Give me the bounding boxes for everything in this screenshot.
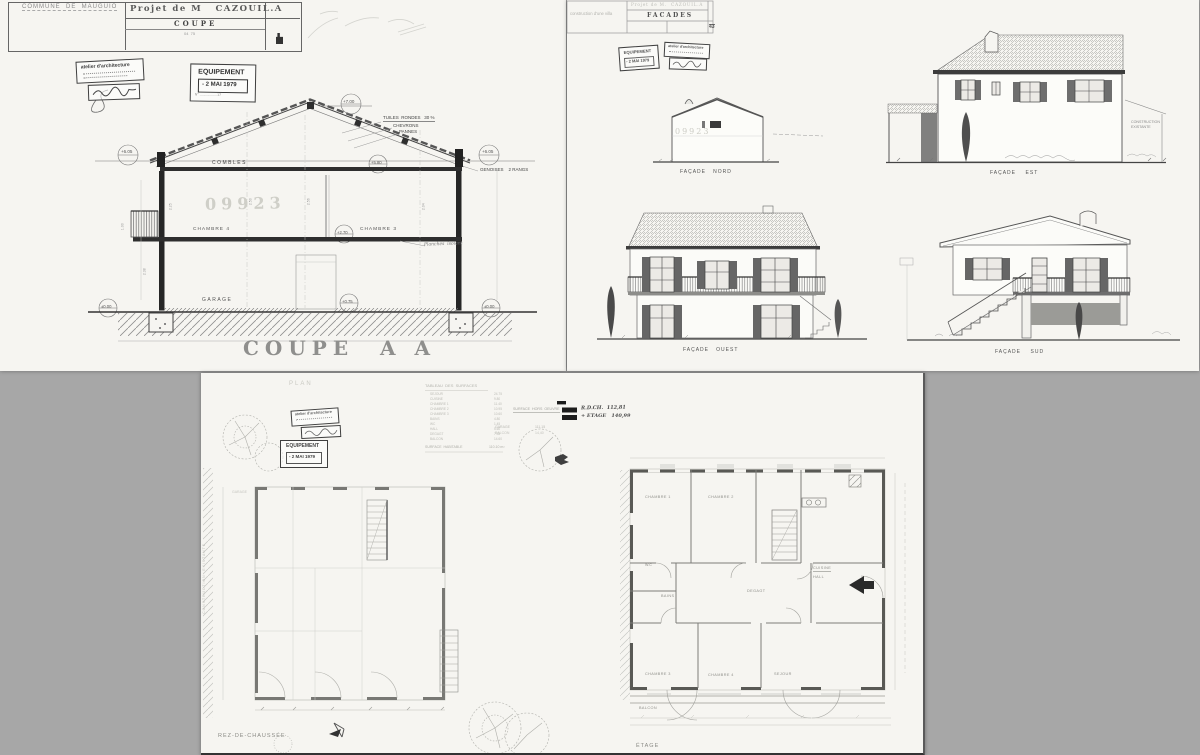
room-chambre-right: CHAMBRE 3 [360,228,397,233]
level-ground-right: ±0.00 [484,305,494,309]
drawing-title: COUPE [174,20,217,27]
equipement-stamp: EQUIPEMENT - 2 MAI 1979 N° .............… [190,63,257,102]
stamp-address-line [83,71,135,75]
surface-note-balcon: BALCON [495,432,509,436]
table-total-label: SURFACE HABITABLE [425,446,462,450]
etage-walls [630,470,885,690]
table-row-value: 14.60 [494,438,502,441]
dim-value: 1.00 [122,223,126,230]
table-total-value: 110.10 m² [489,446,505,450]
table-row-label: CUISINE [430,398,443,401]
atelier-stamp-text: atelier d'architecture [668,45,703,50]
sheet-plan: PLAN atelier d'architecture EQUIPEMENT -… [201,373,925,755]
room-degagt: DEGAGT [747,590,765,594]
facades-signature-stamp [669,57,707,70]
table-row-label: CHAMBRE 3 [430,413,449,416]
room-chambre-left: CHAMBRE 4 [193,228,230,233]
rdc-walls [255,487,445,700]
equipement-date: - 2 MAI 1979 [289,455,315,460]
surface-table-title: TABLEAU DES SURFACES [425,384,477,388]
plan-atelier-stamp: atelier d'architecture [291,407,340,426]
room-cuisine: CUISINE [813,567,831,572]
table-row-label: CHAMBRE 2 [430,408,449,411]
level-combles: +5.80 [371,161,382,165]
note-pannes: PANNES [399,130,417,135]
room-hall: HALL [813,576,824,580]
dim-value: 2.38 [144,268,148,275]
redaction-marks [557,401,577,420]
level-eave-right: +6.05 [482,150,493,155]
note-existing-vertical: CONSTRUCTION EXISTANTE [203,543,206,614]
caption-facade-sud: FAÇADE SUD [995,350,1044,355]
room-combles: COMBLES [212,161,247,166]
facades-tb-num: 43 [709,24,715,30]
drawing-ref: 04 75 [184,32,195,36]
etage-partitions [630,470,883,688]
room-bains: BAINS [661,595,674,599]
watermark-number: 09923 [205,195,286,212]
level-etage: +2.70 [337,231,348,235]
room-wc: W.C [645,564,652,568]
trees [223,415,561,753]
room-chambre4: CHAMBRE 4 [708,674,734,678]
room-garage-faint: GARAGE [232,491,247,495]
rdc-partitions [255,487,445,700]
facade-ouest [597,206,867,339]
caption-facade-est: FAÇADE EST [990,171,1038,176]
equipement-date: - 2 MAI 1979 [202,82,237,89]
scanned-architect-drawings: COMMUNE DE MAUGUIO Projet de M CAZOUIL.A… [0,0,1200,755]
stamp-address-line [83,75,127,78]
equipement-label: EQUIPEMENT [286,444,319,449]
stamp-address-line [296,417,332,421]
pencil-notes [308,11,426,38]
facades-tb-project: Projet de M. CAZOUIL.A [631,3,703,7]
surface-note-label: SURFACE HORS OEUVRE [513,408,560,413]
room-chambre1: CHAMBRE 1 [645,496,671,500]
facade-est [886,31,1166,163]
signature-scribble [89,84,139,100]
surface-note-garage-value: 111,15 [535,426,545,430]
surface-note-value2: + ETAGE 140,99 [581,414,631,419]
room-garage: GARAGE [202,298,232,303]
dim-value: 2.50 [250,198,254,205]
dimension-lines [141,112,497,308]
table-row-label: SEJOUR [430,393,443,396]
stamp-address-line [669,51,703,54]
caption-facade-ouest: FAÇADE OUEST [683,348,738,353]
table-row-value: 9.80 [494,398,500,401]
table-row-label: DEGAGT [430,433,443,436]
table-row-label: BAINS [430,418,440,421]
dim-value: 2.04 [423,203,427,210]
note-construction-existante: CONSTRUCTION EXISTANTE [1131,120,1160,131]
table-row-value: 24.75 [494,393,502,396]
plan-signature-stamp [301,425,342,439]
room-chambre2: CHAMBRE 2 [708,496,734,500]
table-row-label: CHAMBRE 1 [430,403,449,406]
table-row-value: 10.60 [494,413,502,416]
surface-note-garage: GARAGE [495,426,510,430]
room-chambre3: CHAMBRE 3 [645,673,671,677]
table-row-label: HALL [430,428,438,431]
note-chevrons: CHEVRONS [393,124,419,129]
room-sejour: SEJOUR [774,673,792,677]
facades-drawing [567,0,1199,371]
coupe-caption: COUPE A A [243,338,436,358]
facade-sud [900,211,1180,340]
dark-mark [555,454,569,465]
sheet-coupe: COMMUNE DE MAUGUIO Projet de M CAZOUIL.A… [0,0,566,371]
entrance-arrow-icon [849,576,874,594]
facades-tb-title: FACADES [647,13,693,19]
watermark-number: 09923 [675,128,710,136]
dim-value: 2.56 [308,198,312,205]
caption-facade-nord: FAÇADE NORD [680,170,732,175]
caption-rdc: REZ-DE-CHAUSSÉE [218,734,286,740]
surface-note-value1: R.D.CH. 112,81 [581,406,626,412]
equipement-label: EQUIPEMENT [623,49,651,55]
plan-rdc [223,487,458,737]
level-ridge: +7.00 [343,100,354,105]
level-eave-left: +6.05 [121,150,132,155]
title-block-divider [125,2,126,50]
table-row-label: BALCON [430,438,443,441]
plan-equipement-stamp: EQUIPEMENT - 2 MAI 1979 [280,440,328,468]
surface-note-balcon-value: 14,40 [535,432,544,436]
level-ground-left: ±0.00 [101,305,111,309]
level-rdc: +0.75 [342,300,353,304]
dim-value: 2.25 [170,203,174,210]
signature-scribble [670,58,706,69]
project-title: Projet de M CAZOUIL.A [130,5,283,14]
section-roof [150,100,478,172]
atelier-stamp: atelier d'architecture [75,58,144,84]
plan-etage [630,458,905,725]
coupe-drawing [0,0,566,371]
note-tuiles: TUILES RONDES 30 % [383,116,435,122]
room-balcon: BALCON [639,707,657,711]
table-row-value: 10.95 [494,408,502,411]
atelier-stamp-text: atelier d'architecture [81,63,130,71]
table-row-value: 4.80 [494,418,500,421]
caption-etage: ÉTAGE [636,744,659,750]
equipement-number: N° ..................17 [195,94,221,98]
door-arcs [656,563,883,720]
section-structure [131,149,463,311]
commune-label: COMMUNE DE MAUGUIO [22,4,117,11]
sheet-facades: construction d'une villa Projet de M. CA… [567,0,1199,371]
facades-equipement-stamp: EQUIPEMENT - 2 MAI 1979 [618,45,660,72]
facades-tb-left: construction d'une villa [570,12,612,16]
party-wall-hatch [620,470,630,700]
signature-stamp [88,83,141,101]
equipement-label: EQUIPEMENT [198,69,244,77]
table-row-value: 11.40 [494,403,502,406]
plan-title-faint: PLAN [289,381,313,387]
title-block-divider [125,29,265,30]
signature-scribble [302,426,340,438]
table-row-label: WC [430,423,435,426]
note-genoises: GENOISES 2 RANGS [480,168,528,173]
